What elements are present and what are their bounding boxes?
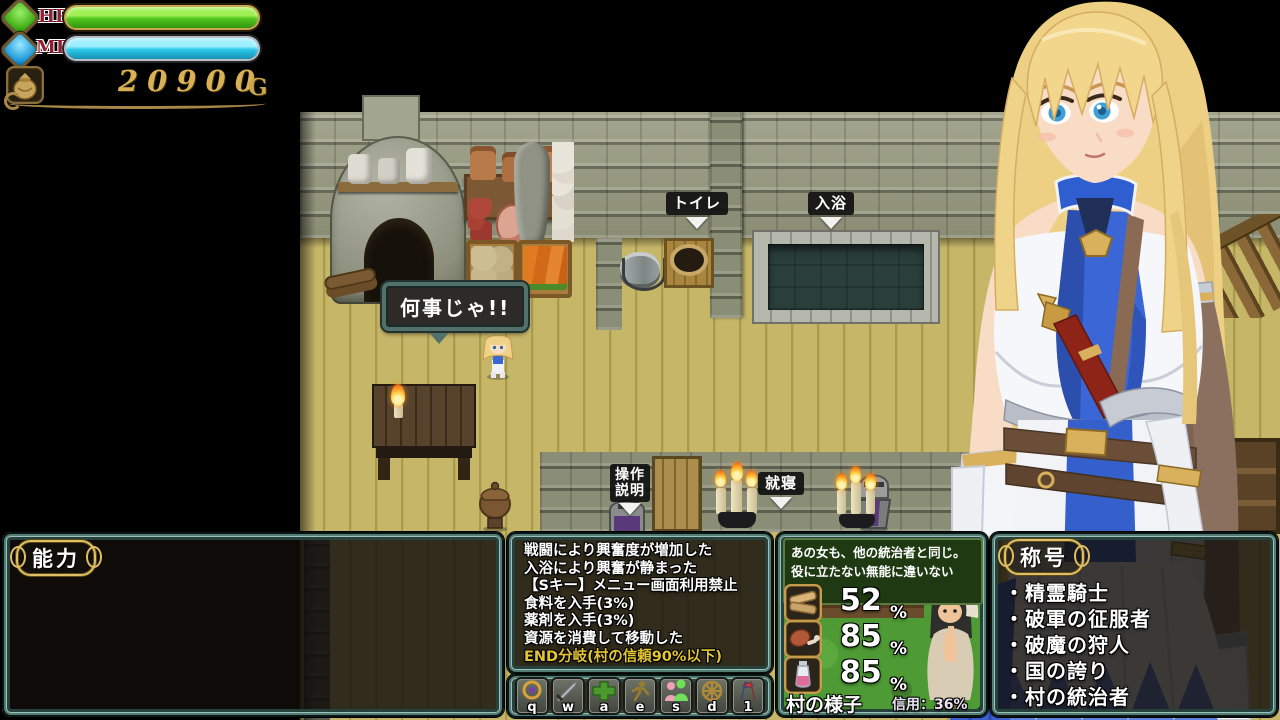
- hotbar-slot-q[interactable]: q: [515, 677, 549, 715]
- sausages: [468, 198, 492, 244]
- hotbar-slot-a[interactable]: a: [587, 677, 621, 715]
- hp-gem-icon: [3, 1, 37, 35]
- meat-icon: [784, 620, 822, 658]
- log-panel: 戦闘により興奮度が増加した 入浴により興奮が静まった 【Sキー】メニュー画面利用…: [507, 532, 773, 674]
- map-label-bath-text: 入浴: [808, 192, 854, 215]
- village-trust: 信用：36%: [892, 694, 968, 714]
- title-item: ・村の統治者: [1004, 684, 1151, 710]
- map-label-sleep[interactable]: 就寝: [758, 472, 804, 509]
- table-leg: [458, 458, 470, 480]
- candelabra-base: [718, 512, 756, 528]
- gold-unit: G: [248, 74, 268, 101]
- gold-underline: [8, 98, 266, 109]
- table-candle: [394, 404, 403, 418]
- table-leg: [378, 458, 390, 480]
- candelabra: [834, 468, 880, 532]
- mp-label: MP: [36, 37, 69, 58]
- jug: [348, 154, 372, 184]
- candelabra: [712, 462, 762, 532]
- speech-bubble-tail: [426, 329, 452, 344]
- furnace: [330, 136, 466, 304]
- log-line: 戦闘により興奮度が増加した: [524, 543, 737, 561]
- map-label-controls[interactable]: 操作 説明: [610, 464, 650, 515]
- hotbar-key-label: q: [515, 700, 549, 715]
- title-item: ・国の誇り: [1004, 658, 1151, 684]
- villager-bubble-line1: あの女も、他の統治者と同じ。: [791, 543, 975, 562]
- log-line: 薬剤を入手(3%): [524, 613, 737, 631]
- pot-npc: [476, 478, 514, 532]
- map-label-sleep-text: 就寝: [758, 472, 804, 495]
- hotbar-slot-w[interactable]: w: [551, 677, 585, 715]
- mp-gem-icon: [3, 33, 37, 67]
- map-label-toilet[interactable]: トイレ: [666, 192, 728, 229]
- hotbar-key-label: s: [659, 700, 693, 715]
- hotbar-slot-1[interactable]: 1: [731, 677, 765, 715]
- candle-flame-icon: [391, 384, 405, 406]
- hotbar-key-label: e: [623, 700, 657, 715]
- hp-label: HP: [38, 6, 69, 27]
- candle-flame-icon: [731, 462, 743, 481]
- ability-panel: 能力: [2, 532, 504, 717]
- candle: [716, 488, 726, 514]
- titles-panel: 称号 ・精霊騎士 ・破軍の征服者 ・破魔の狩人 ・国の誇り ・村の統治者: [990, 532, 1278, 717]
- chimney: [362, 95, 420, 141]
- map-label-controls-line1: 操作: [615, 467, 645, 483]
- wood-icon: [784, 584, 822, 622]
- bath-water: [768, 244, 924, 310]
- bath-pool: [752, 230, 940, 324]
- toilet-hole: [674, 248, 704, 272]
- hotbar: q w a e: [507, 674, 773, 718]
- hud: HP MP 20900 G: [0, 0, 290, 115]
- hp-bar: [66, 7, 258, 28]
- table-top: [372, 384, 476, 448]
- hotbar-key-label: a: [587, 700, 621, 715]
- mp-bar: [66, 38, 258, 59]
- jug: [406, 148, 432, 184]
- resource-value: 52: [840, 586, 882, 616]
- title-item: ・破軍の征服者: [1004, 606, 1151, 632]
- village-footer-label: 村の様子: [786, 690, 862, 717]
- speech-bubble-text: 何事じゃ!!: [382, 282, 528, 331]
- map-label-controls-line2: 説明: [615, 483, 645, 499]
- game-screen: トイレ 入浴 操作 説明 就寝 何事じゃ!!: [0, 0, 1280, 720]
- hotbar-slot-d[interactable]: d: [695, 677, 729, 715]
- candle-flame-icon: [746, 470, 757, 487]
- title-item: ・破魔の狩人: [1004, 632, 1151, 658]
- bucket-handle: [622, 258, 666, 291]
- title-item: ・精霊騎士: [1004, 580, 1151, 606]
- down-arrow-icon: [770, 497, 792, 509]
- hanging-fish: [514, 142, 550, 246]
- hotbar-slot-e[interactable]: e: [623, 677, 657, 715]
- wood-toilet: [664, 238, 714, 288]
- down-arrow-icon: [619, 503, 641, 515]
- candle-flame-icon: [865, 473, 876, 490]
- wood-door: [652, 456, 702, 532]
- gold-underline-curl: [4, 92, 22, 110]
- bucket: [618, 244, 662, 292]
- log-line: 入浴により興奮が静まった: [524, 561, 737, 579]
- map-label-bath[interactable]: 入浴: [808, 192, 854, 229]
- candle-flame-icon: [836, 473, 847, 490]
- table-edge: [376, 448, 472, 458]
- clay-pot: [470, 146, 496, 180]
- candle: [731, 480, 742, 514]
- candle: [747, 488, 757, 514]
- table: [372, 384, 476, 482]
- candle: [851, 482, 861, 514]
- map-label-toilet-text: トイレ: [666, 192, 728, 215]
- candle-flame-icon: [715, 470, 726, 487]
- carrots: [523, 246, 567, 290]
- down-arrow-icon: [686, 217, 708, 229]
- hotbar-slot-s[interactable]: s: [659, 677, 693, 715]
- log-line: 【Sキー】メニュー画面利用禁止: [524, 578, 737, 596]
- titles-panel-title: 称号: [1004, 539, 1084, 575]
- village-panel: あの女も、他の統治者と同じ。 役に立たない無能に違いないわ。 52 %: [776, 532, 988, 717]
- candle: [866, 490, 875, 514]
- candelabra-base: [839, 514, 875, 528]
- log-line: 資源を消費して移動した: [524, 631, 737, 649]
- garlic-strings: [552, 142, 574, 242]
- candle-flame-icon: [850, 466, 861, 483]
- gold-amount: 20900: [118, 64, 264, 98]
- potion-icon: [784, 656, 822, 694]
- jug: [378, 158, 400, 184]
- resource-value: 85: [840, 622, 882, 652]
- log-line-highlight: END分岐(村の信頼90%以下): [524, 649, 737, 667]
- hotbar-key-label: d: [695, 700, 729, 715]
- hotbar-key-label: w: [551, 700, 585, 715]
- speech-bubble: 何事じゃ!!: [382, 282, 528, 344]
- hotbar-key-label: 1: [731, 700, 765, 715]
- ability-panel-title: 能力: [16, 540, 96, 576]
- down-arrow-icon: [820, 217, 842, 229]
- log-line: 食料を入手(3%): [524, 596, 737, 614]
- resource-value: 85: [840, 658, 882, 688]
- candle: [837, 490, 846, 514]
